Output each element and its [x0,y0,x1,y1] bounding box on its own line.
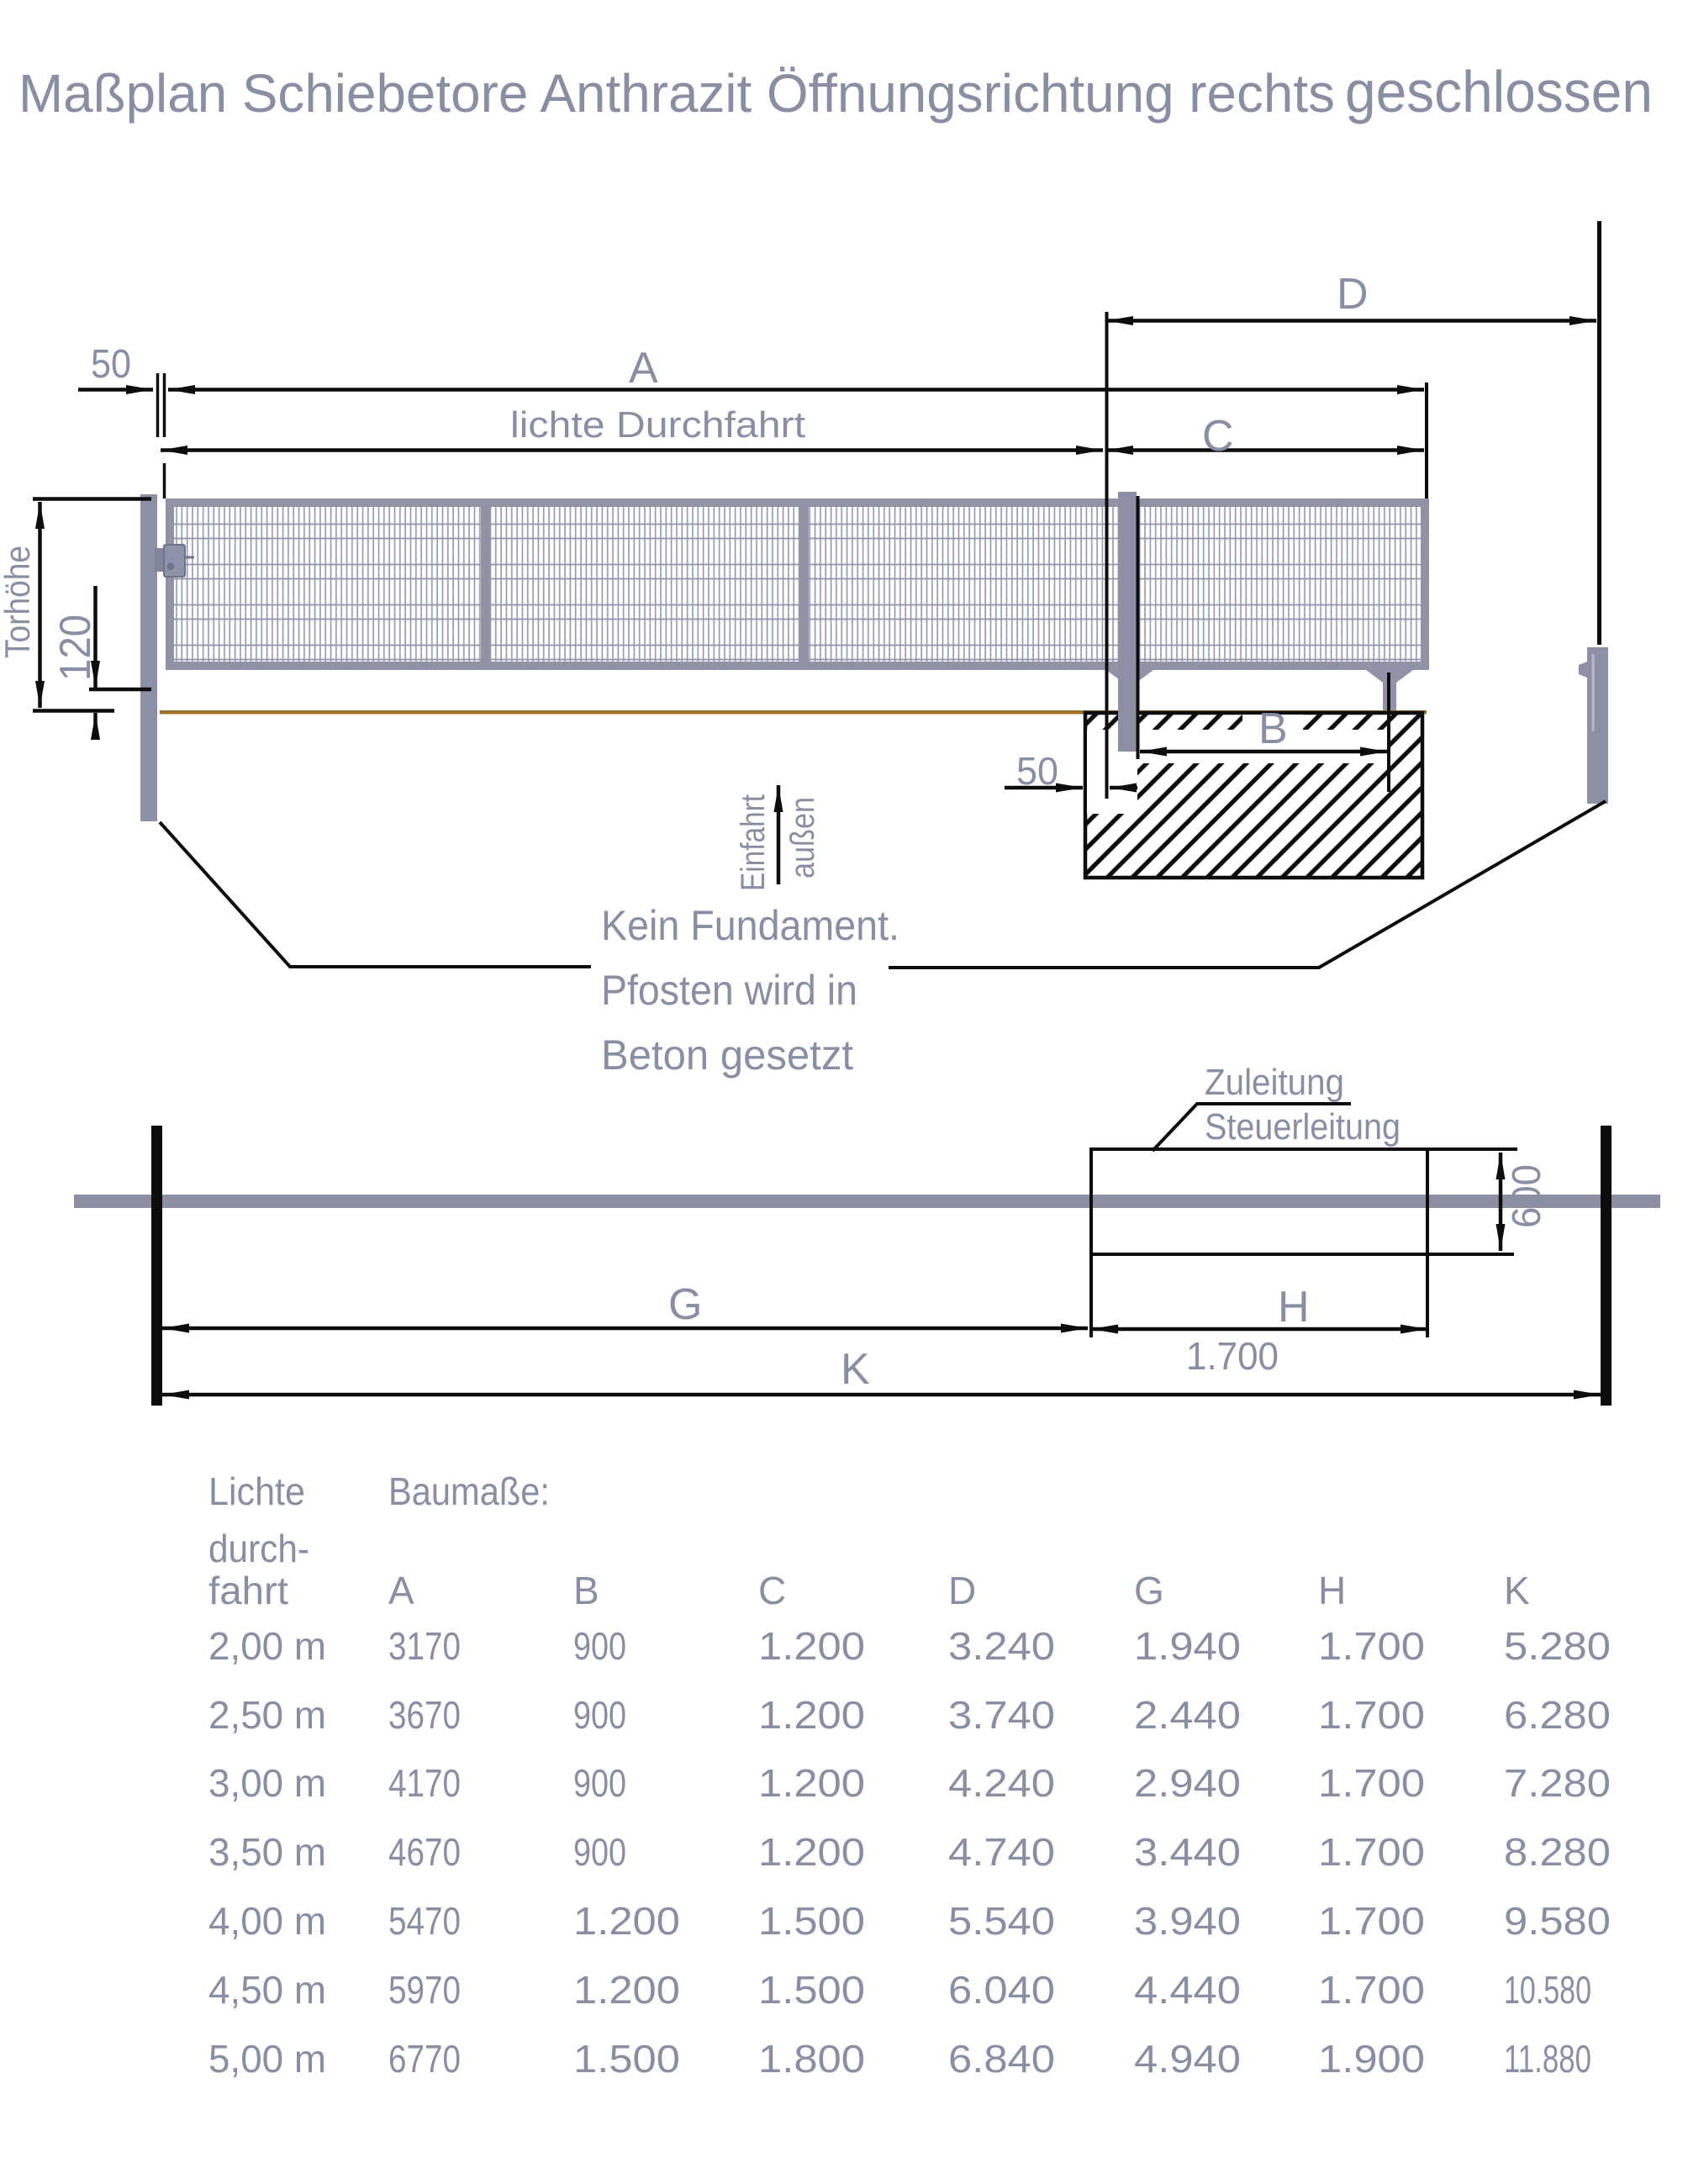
svg-text:G: G [1134,1569,1164,1612]
svg-text:1.700: 1.700 [1186,1334,1279,1378]
svg-text:A: A [629,344,658,393]
svg-text:6.840: 6.840 [948,2037,1055,2081]
svg-text:4670: 4670 [388,1830,461,1874]
svg-text:1.200: 1.200 [758,1830,865,1874]
svg-text:D: D [948,1569,976,1612]
svg-text:B: B [573,1569,599,1612]
svg-text:1.700: 1.700 [1318,1761,1425,1805]
svg-text:1.500: 1.500 [758,1899,865,1943]
svg-text:9.580: 9.580 [1504,1899,1611,1943]
svg-text:120: 120 [51,615,100,681]
svg-text:3170: 3170 [388,1624,461,1668]
svg-text:durch-: durch- [208,1527,309,1570]
svg-text:4.740: 4.740 [948,1830,1055,1874]
svg-text:geschlossen: geschlossen [1345,59,1653,124]
svg-text:Beton gesetzt: Beton gesetzt [601,1031,853,1079]
svg-text:6.280: 6.280 [1504,1693,1611,1737]
svg-text:1.700: 1.700 [1318,1624,1425,1668]
svg-text:Kein Fundament.: Kein Fundament. [601,902,899,949]
svg-text:6770: 6770 [388,2037,461,2081]
svg-text:1.700: 1.700 [1318,1830,1425,1874]
svg-text:außen: außen [784,797,821,878]
svg-text:Maßplan Schiebetore Anthrazit: Maßplan Schiebetore Anthrazit Öffnungsri… [18,63,1335,124]
svg-text:1.500: 1.500 [573,2037,680,2081]
svg-text:1.700: 1.700 [1318,1899,1425,1943]
svg-text:3,50 m: 3,50 m [208,1830,326,1874]
svg-text:10.580: 10.580 [1504,1968,1591,2012]
svg-text:4170: 4170 [388,1761,461,1805]
svg-text:H: H [1318,1569,1346,1612]
svg-text:2.940: 2.940 [1134,1761,1241,1805]
svg-text:6.040: 6.040 [948,1968,1055,2012]
svg-text:11.880: 11.880 [1504,2037,1591,2081]
svg-text:3.440: 3.440 [1134,1830,1241,1874]
svg-text:Baumaße:: Baumaße: [388,1469,550,1513]
svg-text:1.940: 1.940 [1134,1624,1241,1668]
svg-text:1.800: 1.800 [758,2037,865,2081]
svg-text:4.940: 4.940 [1134,2037,1241,2081]
svg-text:3,00 m: 3,00 m [208,1761,326,1805]
svg-text:1.200: 1.200 [758,1624,865,1668]
svg-text:1.200: 1.200 [758,1693,865,1737]
svg-text:1.900: 1.900 [1318,2037,1425,2081]
svg-text:Lichte: Lichte [208,1469,305,1513]
svg-text:Steuerleitung: Steuerleitung [1205,1106,1401,1147]
svg-text:Einfahrt: Einfahrt [735,794,772,891]
svg-text:1.200: 1.200 [573,1968,680,2012]
svg-text:C: C [1202,412,1234,461]
svg-text:2,00 m: 2,00 m [208,1624,326,1668]
svg-text:B: B [1258,704,1288,753]
svg-text:lichte Durchfahrt: lichte Durchfahrt [510,404,805,446]
svg-text:5,00 m: 5,00 m [208,2037,326,2081]
svg-text:4,00 m: 4,00 m [208,1899,326,1943]
svg-text:fahrt: fahrt [208,1569,288,1612]
svg-text:H: H [1278,1283,1310,1332]
svg-text:4,50 m: 4,50 m [208,1968,326,2012]
svg-text:900: 900 [573,1624,626,1668]
svg-text:5.280: 5.280 [1504,1624,1611,1668]
svg-text:3.240: 3.240 [948,1624,1055,1668]
svg-text:K: K [1504,1569,1530,1612]
svg-text:4.240: 4.240 [948,1761,1055,1805]
svg-text:Torhöhe: Torhöhe [0,546,37,658]
svg-text:A: A [388,1569,414,1612]
svg-text:1.500: 1.500 [758,1968,865,2012]
svg-text:900: 900 [573,1761,626,1805]
svg-text:5470: 5470 [388,1899,461,1943]
svg-text:600: 600 [1505,1164,1549,1228]
svg-text:8.280: 8.280 [1504,1830,1611,1874]
svg-text:1.200: 1.200 [573,1899,680,1943]
svg-text:5.540: 5.540 [948,1899,1055,1943]
svg-text:4.440: 4.440 [1134,1968,1241,2012]
svg-text:5970: 5970 [388,1968,461,2012]
svg-text:1.200: 1.200 [758,1761,865,1805]
svg-text:3.940: 3.940 [1134,1899,1241,1943]
svg-text:900: 900 [573,1830,626,1874]
svg-text:D: D [1337,270,1369,319]
svg-text:2.440: 2.440 [1134,1693,1241,1737]
svg-text:50: 50 [1016,749,1058,793]
svg-text:50: 50 [91,342,131,387]
svg-text:C: C [758,1569,786,1612]
svg-text:900: 900 [573,1693,626,1737]
svg-text:G: G [668,1280,702,1329]
svg-text:3670: 3670 [388,1693,461,1737]
svg-text:2,50 m: 2,50 m [208,1693,326,1737]
svg-text:Zuleitung: Zuleitung [1205,1062,1344,1103]
svg-text:1.700: 1.700 [1318,1693,1425,1737]
svg-text:Pfosten wird in: Pfosten wird in [601,967,857,1014]
svg-text:1.700: 1.700 [1318,1968,1425,2012]
svg-text:K: K [841,1345,870,1394]
svg-text:7.280: 7.280 [1504,1761,1611,1805]
svg-text:3.740: 3.740 [948,1693,1055,1737]
